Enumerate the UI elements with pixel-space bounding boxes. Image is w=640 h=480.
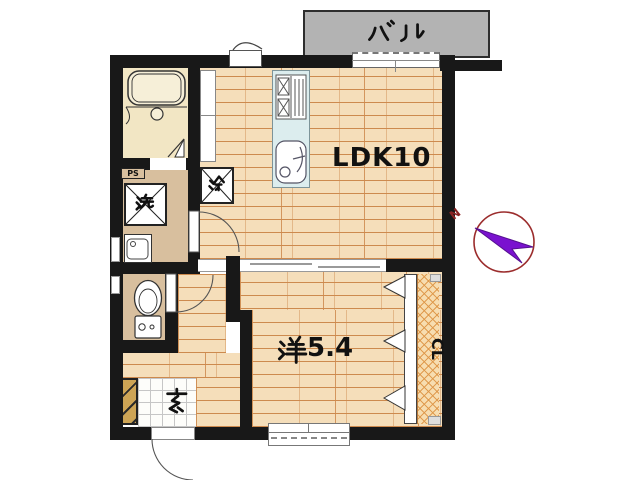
entrance-door-icon — [152, 439, 193, 480]
balcony-glyph-ba — [369, 21, 393, 39]
washer-glyph — [137, 195, 153, 209]
balcony-glyph-ru — [401, 25, 423, 41]
floor-plan: バル 洋5.4 玄 冷 洗 PS — [0, 0, 640, 480]
toilet-icon — [135, 281, 162, 339]
vent-flap-icon — [233, 43, 262, 50]
refrigerator-glyph — [209, 177, 223, 191]
entrance-glyph — [168, 389, 186, 412]
bathroom-door-icon — [168, 139, 184, 157]
closet-folding-door-icon — [384, 276, 405, 410]
kitchen-sink-icon — [276, 141, 306, 183]
ldk-door-icon — [189, 211, 239, 252]
closet-label: CL — [407, 335, 447, 363]
toilet-door-icon — [166, 274, 213, 312]
bathtub-icon — [126, 71, 187, 124]
compass-icon — [474, 212, 534, 272]
western-room-number-label: 5.4 — [307, 333, 369, 363]
ldk-label: LDK10 — [332, 143, 432, 173]
pipe-space-box: PS — [121, 168, 145, 179]
western-room-glyph — [279, 337, 305, 362]
washbasin-icon — [127, 239, 148, 259]
plan-drawing-layer — [0, 0, 640, 480]
stove-icon — [276, 75, 306, 119]
